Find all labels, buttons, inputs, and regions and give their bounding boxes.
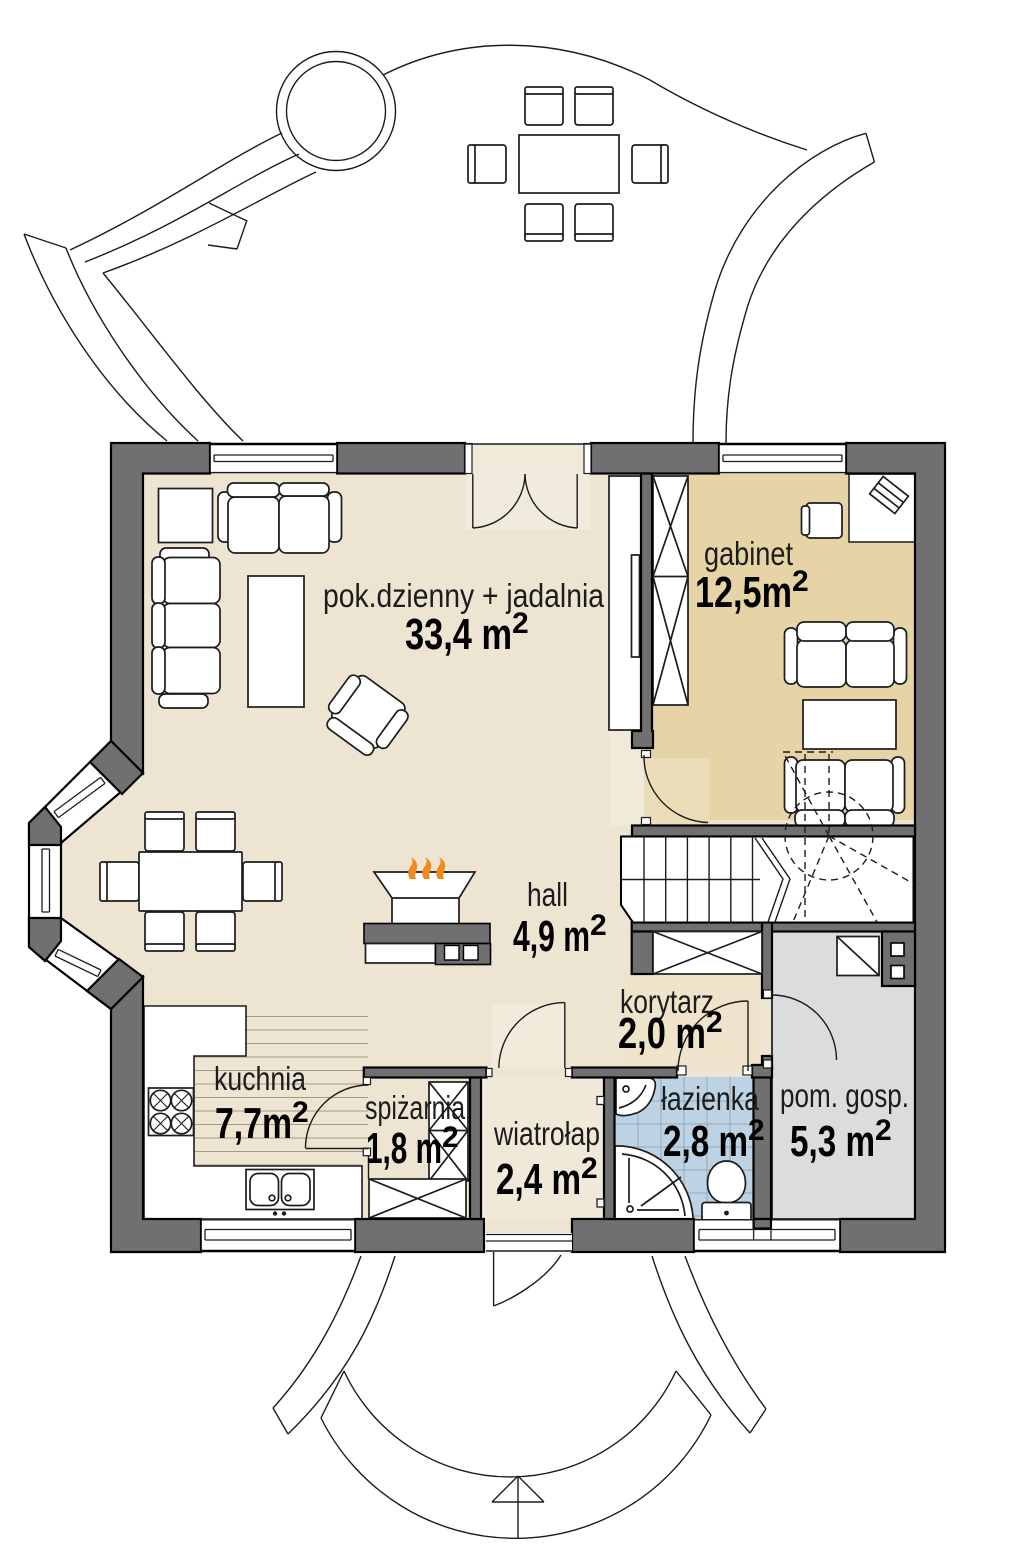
svg-text:hall: hall — [527, 876, 568, 913]
svg-text:12,5m2: 12,5m2 — [695, 565, 809, 617]
svg-text:pok.dzienny + jadalnia: pok.dzienny + jadalnia — [323, 577, 605, 614]
svg-text:łazienka: łazienka — [661, 1080, 760, 1117]
svg-text:wiatrołap: wiatrołap — [493, 1115, 600, 1152]
svg-text:pom. gosp.: pom. gosp. — [780, 1077, 909, 1114]
svg-text:gabinet: gabinet — [704, 535, 793, 572]
svg-text:33,4 m2: 33,4 m2 — [405, 607, 529, 659]
svg-text:kuchnia: kuchnia — [214, 1060, 307, 1097]
